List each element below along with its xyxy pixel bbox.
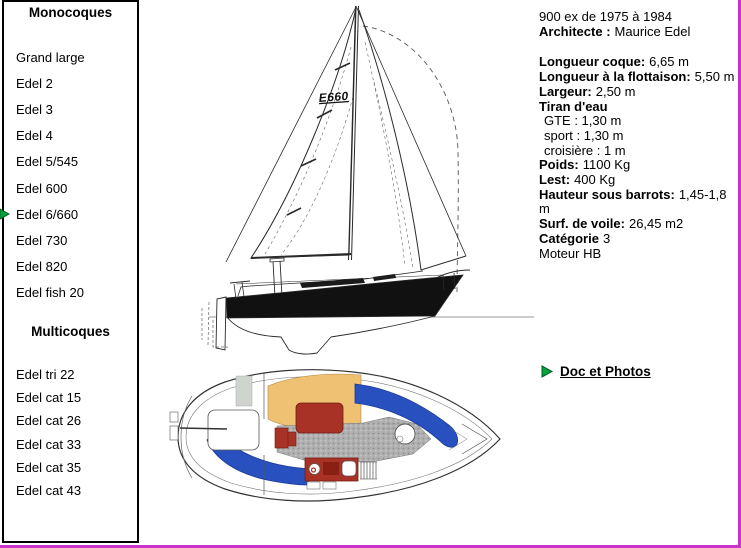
spec-beam: Largeur:2,50 m xyxy=(539,85,739,100)
doc-photos-row: Doc et Photos xyxy=(541,364,651,379)
spec-hull-length: Longueur coque:6,65 m xyxy=(539,55,739,70)
sidebar-item-edel-3[interactable]: Edel 3 xyxy=(4,96,137,122)
sidebar-menu: Monocoques Grand large Edel 2 Edel 3 Ede… xyxy=(2,0,139,543)
selected-item-arrow-icon xyxy=(0,208,10,220)
production-count: 900 ex de 1975 à 1984 xyxy=(539,10,739,25)
sidebar-item-edel-4[interactable]: Edel 4 xyxy=(4,123,137,149)
sidebar-item-edel-tri-22[interactable]: Edel tri 22 xyxy=(4,363,137,386)
sidebar-item-edel-820[interactable]: Edel 820 xyxy=(4,254,137,280)
spec-waterline-length: Longueur à la flottaison:5,50 m xyxy=(539,70,739,85)
sidebar-item-edel-5-545[interactable]: Edel 5/545 xyxy=(4,149,137,175)
spec-weight: Poids:1100 Kg xyxy=(539,158,739,173)
cockpit-well xyxy=(208,410,259,450)
sailplan-drawing: E660 xyxy=(193,2,538,360)
sidebar-item-edel-cat-33[interactable]: Edel cat 33 xyxy=(4,432,137,455)
sidebar-item-grand-large[interactable]: Grand large xyxy=(4,44,137,70)
spec-draft-gte: GTE : 1,30 m xyxy=(539,114,739,129)
spec-headroom: Hauteur sous barrots:1,45-1,8 m xyxy=(539,188,739,217)
monocoques-list: Grand large Edel 2 Edel 3 Edel 4 Edel 5/… xyxy=(4,44,137,306)
doc-photos-link[interactable]: Doc et Photos xyxy=(560,364,651,379)
sidebar-item-edel-600[interactable]: Edel 600 xyxy=(4,175,137,201)
spec-category: Catégorie3 xyxy=(539,232,739,247)
spec-draft-title: Tiran d'eau xyxy=(539,100,739,115)
spec-engine: Moteur HB xyxy=(539,247,739,262)
sidebar-item-edel-cat-43[interactable]: Edel cat 43 xyxy=(4,479,137,502)
sidebar-item-edel-730[interactable]: Edel 730 xyxy=(4,227,137,253)
spec-sail-area: Surf. de voile:26,45 m2 xyxy=(539,217,739,232)
sidebar-item-edel-fish-20[interactable]: Edel fish 20 xyxy=(4,280,137,306)
saloon-table xyxy=(296,403,343,433)
sidebar-section-title-monocoques: Monocoques xyxy=(4,5,137,23)
underbody-keel xyxy=(227,316,435,354)
doc-photos-arrow-icon xyxy=(541,365,553,378)
multicoques-list: Edel tri 22 Edel cat 15 Edel cat 26 Edel… xyxy=(4,363,137,502)
spec-ballast: Lest:400 Kg xyxy=(539,173,739,188)
sidebar-item-edel-6-660-selected[interactable]: Edel 6/660 xyxy=(4,201,137,227)
sidebar-item-edel-cat-26[interactable]: Edel cat 26 xyxy=(4,409,137,432)
sink xyxy=(342,461,356,476)
sail-logo-text: E660 xyxy=(318,89,349,105)
interior-plan-drawing xyxy=(167,362,509,508)
page: Monocoques Grand large Edel 2 Edel 3 Ede… xyxy=(0,0,741,548)
rudder xyxy=(216,297,226,350)
mainsail xyxy=(251,8,356,258)
sidebar-section-title-multicoques: Multicoques xyxy=(4,324,137,342)
sidebar-item-edel-cat-15[interactable]: Edel cat 15 xyxy=(4,386,137,409)
spec-draft-cruise: croisière : 1 m xyxy=(539,144,739,159)
sidebar-item-edel-cat-35[interactable]: Edel cat 35 xyxy=(4,456,137,479)
sidebar-item-edel-2[interactable]: Edel 2 xyxy=(4,70,137,96)
tiller xyxy=(180,428,227,429)
architect-row: Architecte :Maurice Edel xyxy=(539,25,739,40)
spec-draft-sport: sport : 1,30 m xyxy=(539,129,739,144)
spec-panel: 900 ex de 1975 à 1984 Architecte :Mauric… xyxy=(539,10,739,261)
